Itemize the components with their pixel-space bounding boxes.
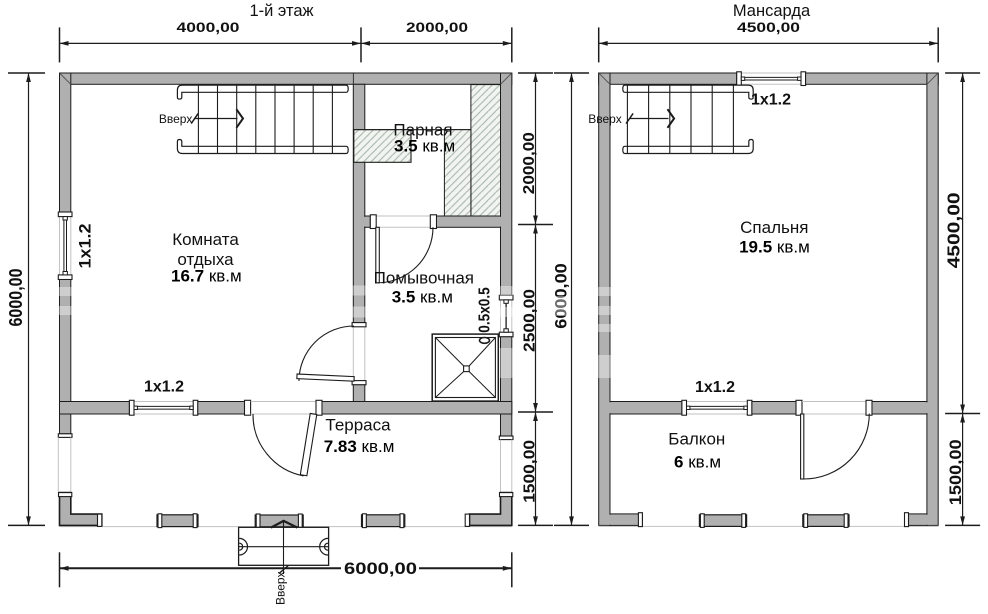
svg-text:4500,00: 4500,00 <box>737 20 800 36</box>
svg-text:0.5х0.5: 0.5х0.5 <box>477 287 494 333</box>
svg-text:Вверх: Вверх <box>588 112 621 126</box>
svg-text:4500,00: 4500,00 <box>944 192 964 268</box>
svg-text:1500,00: 1500,00 <box>521 440 538 503</box>
svg-text:2500,00: 2500,00 <box>521 289 538 352</box>
svg-text:Вверх: Вверх <box>274 572 288 605</box>
svg-text:19.5 кв.м: 19.5 кв.м <box>739 238 810 257</box>
svg-text:Балкон: Балкон <box>668 430 725 449</box>
svg-text:16.7 кв.м: 16.7 кв.м <box>171 267 242 286</box>
svg-text:7.83 кв.м: 7.83 кв.м <box>324 437 395 456</box>
svg-text:Спальня: Спальня <box>740 218 808 237</box>
svg-text:1-й этаж: 1-й этаж <box>249 2 313 20</box>
svg-text:Вверх: Вверх <box>159 112 192 126</box>
svg-text:Помывочная: Помывочная <box>374 269 474 288</box>
svg-text:1500,00: 1500,00 <box>946 439 965 505</box>
svg-text:6 кв.м: 6 кв.м <box>674 452 721 471</box>
svg-text:1х1.2: 1х1.2 <box>751 91 791 108</box>
svg-text:6000,00: 6000,00 <box>344 560 417 578</box>
svg-text:Комната: Комната <box>172 230 239 249</box>
svg-text:2000,00: 2000,00 <box>406 20 468 36</box>
svg-text:1х1.2: 1х1.2 <box>695 379 735 396</box>
svg-text:4000,00: 4000,00 <box>177 20 240 36</box>
svg-text:Терраса: Терраса <box>325 416 391 435</box>
svg-text:1х1.2: 1х1.2 <box>77 224 95 269</box>
svg-text:3.5 кв.м: 3.5 кв.м <box>392 287 453 306</box>
svg-text:2000,00: 2000,00 <box>521 132 538 194</box>
svg-text:Мансарда: Мансарда <box>733 2 811 20</box>
svg-text:1х1.2: 1х1.2 <box>144 379 184 396</box>
svg-text:6000,00: 6000,00 <box>6 269 26 327</box>
svg-text:3.5 кв.м: 3.5 кв.м <box>394 137 455 156</box>
